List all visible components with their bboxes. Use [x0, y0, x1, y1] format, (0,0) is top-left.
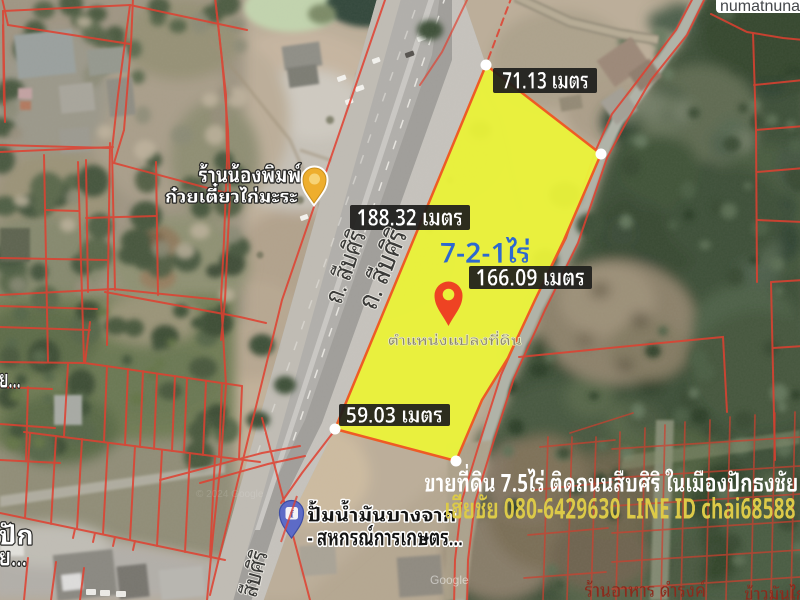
svg-text:numatnunat: numatnunat [720, 0, 800, 15]
svg-text:Google: Google [430, 573, 469, 587]
svg-text:© 2024 Google: © 2024 Google [196, 489, 264, 500]
